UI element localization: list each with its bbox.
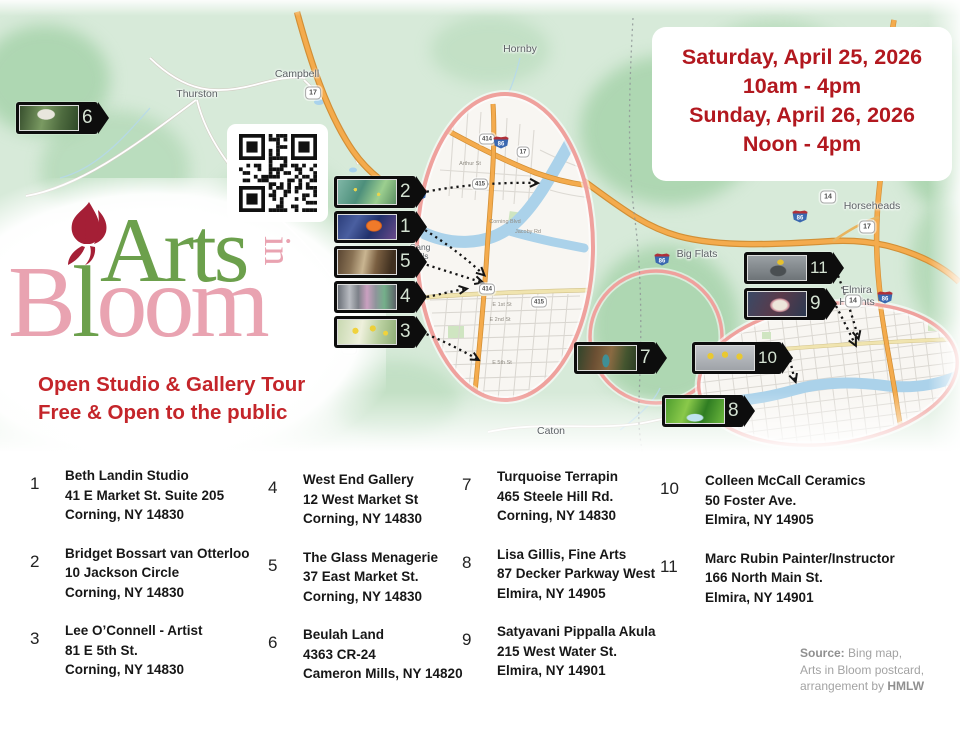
entry-number: 7 (462, 467, 497, 526)
qr-svg (239, 134, 317, 212)
directory-entry-6: 6Beulah Land4363 CR-24Cameron Mills, NY … (268, 625, 466, 684)
entry-name: Marc Rubin Painter/Instructor (705, 549, 895, 569)
entry-address: 10 Jackson Circle (65, 563, 250, 583)
directory-entry-3: 3Lee O’Connell - Artist81 E 5th St.Corni… (30, 621, 266, 680)
entry-number: 6 (268, 625, 303, 684)
entry-address: 12 West Market St (303, 490, 422, 510)
map-marker-11: 11 (744, 252, 833, 284)
route-shield-414: 414 (479, 134, 495, 145)
route-shield-17: 17 (305, 87, 321, 100)
map-marker-10: 10 (692, 342, 782, 374)
entry-number: 2 (30, 544, 65, 603)
entry-address: 37 East Market St. (303, 567, 438, 587)
interstate-86-label: 86 (797, 215, 804, 223)
entry-name: Turquoise Terrapin (497, 467, 618, 487)
entry-number: 8 (462, 545, 497, 604)
event-date-1: Saturday, April 25, 2026 (652, 43, 952, 72)
entry-city: Elmira, NY 14901 (497, 661, 656, 681)
town-label-horseheads: Horseheads (844, 200, 901, 212)
street-label: E 2nd St (489, 317, 510, 323)
entry-city: Cameron Mills, NY 14820 (303, 664, 463, 684)
qr-code (227, 124, 328, 222)
marker-number: 5 (397, 251, 414, 273)
entry-city: Elmira, NY 14901 (705, 588, 895, 608)
directory-entry-9: 9Satyavani Pippalla Akula215 West Water … (462, 622, 670, 681)
source-label: Source: (800, 646, 845, 660)
entry-city: Corning, NY 14830 (497, 506, 618, 526)
directory-entry-8: 8Lisa Gillis, Fine Arts87 Decker Parkway… (462, 545, 670, 604)
route-shield-14: 14 (820, 191, 836, 204)
directory-entry-2: 2Bridget Bossart van Otterloo10 Jackson … (30, 544, 266, 603)
entry-number: 1 (30, 466, 65, 525)
town-label-thurston: Thurston (176, 88, 217, 100)
entry-name: Beulah Land (303, 625, 463, 645)
interstate-86-label: 86 (659, 258, 666, 266)
town-label-caton: Caton (537, 425, 565, 437)
entry-name: The Glass Menagerie (303, 548, 438, 568)
marker-number: 8 (725, 400, 742, 422)
entry-number: 9 (462, 622, 497, 681)
route-shield-415: 415 (531, 297, 547, 308)
directory-entry-4: 4West End Gallery12 West Market StCornin… (268, 470, 466, 529)
street-label: E 1st St (492, 302, 511, 308)
route-shield-17: 17 (859, 221, 875, 234)
tulip-icon (64, 200, 114, 266)
entry-city: Corning, NY 14830 (65, 583, 250, 603)
interstate-86-label: 86 (882, 296, 889, 304)
entry-name: Lisa Gillis, Fine Arts (497, 545, 655, 565)
entry-city: Corning, NY 14830 (303, 587, 438, 607)
entry-address: 81 E 5th St. (65, 641, 203, 661)
marker-number: 4 (397, 286, 414, 308)
town-label-big-flats: Big Flats (677, 248, 718, 260)
entry-number: 10 (660, 471, 705, 530)
source-credit: HMLW (887, 679, 924, 693)
route-shield-414: 414 (479, 284, 495, 295)
koi-fish-painting-photo (337, 214, 397, 240)
entry-address: 87 Decker Parkway West (497, 564, 655, 584)
marker-number: 2 (397, 181, 414, 203)
street-label: Jacoby Rd (515, 229, 541, 235)
entry-city: Elmira, NY 14905 (497, 584, 655, 604)
entry-address: 465 Steele Hill Rd. (497, 487, 618, 507)
entry-address: 41 E Market St. Suite 205 (65, 486, 224, 506)
entry-name: Colleen McCall Ceramics (705, 471, 866, 491)
directory-entry-5: 5The Glass Menagerie37 East Market St.Co… (268, 548, 466, 607)
entry-address: 50 Foster Ave. (705, 491, 866, 511)
map-marker-9: 9 (744, 288, 826, 320)
marker-number: 10 (755, 348, 780, 368)
entry-name: Lee O’Connell - Artist (65, 621, 203, 641)
landscape-painting-photo (337, 179, 397, 205)
entry-address: 4363 CR-24 (303, 645, 463, 665)
entry-number: 4 (268, 470, 303, 529)
street-label: Corning Blvd (489, 219, 521, 225)
marker-number: 3 (397, 321, 414, 343)
marker-number: 9 (807, 293, 824, 315)
daffodil-painting-photo (337, 319, 397, 345)
marker-number: 11 (807, 258, 831, 278)
glass-horn-sculpture-photo (337, 249, 397, 275)
interstate-86-label: 86 (498, 141, 505, 149)
map-marker-3: 3 (334, 316, 416, 348)
route-shield-17: 17 (517, 147, 530, 158)
entry-name: West End Gallery (303, 470, 422, 490)
map-marker-1: 1 (334, 211, 416, 243)
entry-city: Corning, NY 14830 (65, 505, 224, 525)
event-time-1: 10am - 4pm (652, 72, 952, 101)
source-note: Source: Bing map, Arts in Bloom postcard… (800, 645, 960, 695)
entry-name: Satyavani Pippalla Akula (497, 622, 656, 642)
marker-number: 6 (79, 107, 96, 129)
map-marker-6: 6 (16, 102, 98, 134)
map-marker-8: 8 (662, 395, 744, 427)
directory-column-1: 1Beth Landin Studio41 E Market St. Suite… (30, 460, 266, 699)
town-label-campbell: Campbell (275, 68, 319, 80)
directory-entry-7: 7Turquoise Terrapin465 Steele Hill Rd.Co… (462, 467, 670, 526)
directory-entry-10: 10Colleen McCall Ceramics50 Foster Ave.E… (660, 471, 952, 530)
directory-entry-1: 1Beth Landin Studio41 E Market St. Suite… (30, 466, 266, 525)
marker-number: 7 (637, 347, 654, 369)
house-and-garden-photo (19, 105, 79, 131)
source-text1: Bing map, (845, 646, 902, 660)
directory-column-4: 10Colleen McCall Ceramics50 Foster Ave.E… (660, 460, 952, 626)
source-line2: Arts in Bloom postcard, (800, 662, 960, 679)
entry-city: Elmira, NY 14905 (705, 510, 866, 530)
entry-address: 215 West Water St. (497, 642, 656, 662)
gallery-storefront-photo (337, 284, 397, 310)
entry-number: 5 (268, 548, 303, 607)
street-label: E 5th St (492, 360, 512, 366)
entry-city: Corning, NY 14830 (303, 509, 422, 529)
map-marker-2: 2 (334, 176, 416, 208)
source-line3: arrangement by HMLW (800, 678, 960, 695)
daffodils-in-vases-photo (695, 345, 755, 371)
directory-column-3: 7Turquoise Terrapin465 Steele Hill Rd.Co… (462, 460, 670, 700)
event-time-2: Noon - 4pm (652, 130, 952, 159)
entry-name: Bridget Bossart van Otterloo (65, 544, 250, 564)
entry-number: 11 (660, 549, 705, 608)
arts-in-bloom-flyer: Thurston Campbell Hornby Caton Big Flats… (0, 0, 960, 739)
entry-city: Corning, NY 14830 (65, 660, 203, 680)
sculpture-with-lemon-photo (747, 255, 807, 281)
green-landscape-painting-photo (665, 398, 725, 424)
route-shield-415: 415 (472, 179, 488, 190)
map-marker-5: 5 (334, 246, 416, 278)
lily-flower-photo (747, 291, 807, 317)
entry-number: 3 (30, 621, 65, 680)
marker-number: 1 (397, 216, 414, 238)
map-marker-7: 7 (574, 342, 656, 374)
tagline-line2: Free & Open to the public (38, 399, 305, 427)
directory-entry-11: 11Marc Rubin Painter/Instructor166 North… (660, 549, 952, 608)
town-label-hornby: Hornby (503, 43, 537, 55)
entry-address: 166 North Main St. (705, 568, 895, 588)
directory-column-2: 4West End Gallery12 West Market StCornin… (268, 460, 466, 703)
source-text3: arrangement by (800, 679, 887, 693)
street-label: Arthur St (459, 161, 481, 167)
tagline-line1: Open Studio & Gallery Tour (38, 371, 305, 399)
wooden-cabin-photo (577, 345, 637, 371)
map-marker-4: 4 (334, 281, 416, 313)
event-date-2: Sunday, April 26, 2026 (652, 101, 952, 130)
event-dates-panel: Saturday, April 25, 2026 10am - 4pm Sund… (652, 27, 952, 181)
tagline: Open Studio & Gallery Tour Free & Open t… (38, 371, 305, 427)
source-line1: Source: Bing map, (800, 645, 960, 662)
route-shield-14: 14 (845, 295, 861, 308)
